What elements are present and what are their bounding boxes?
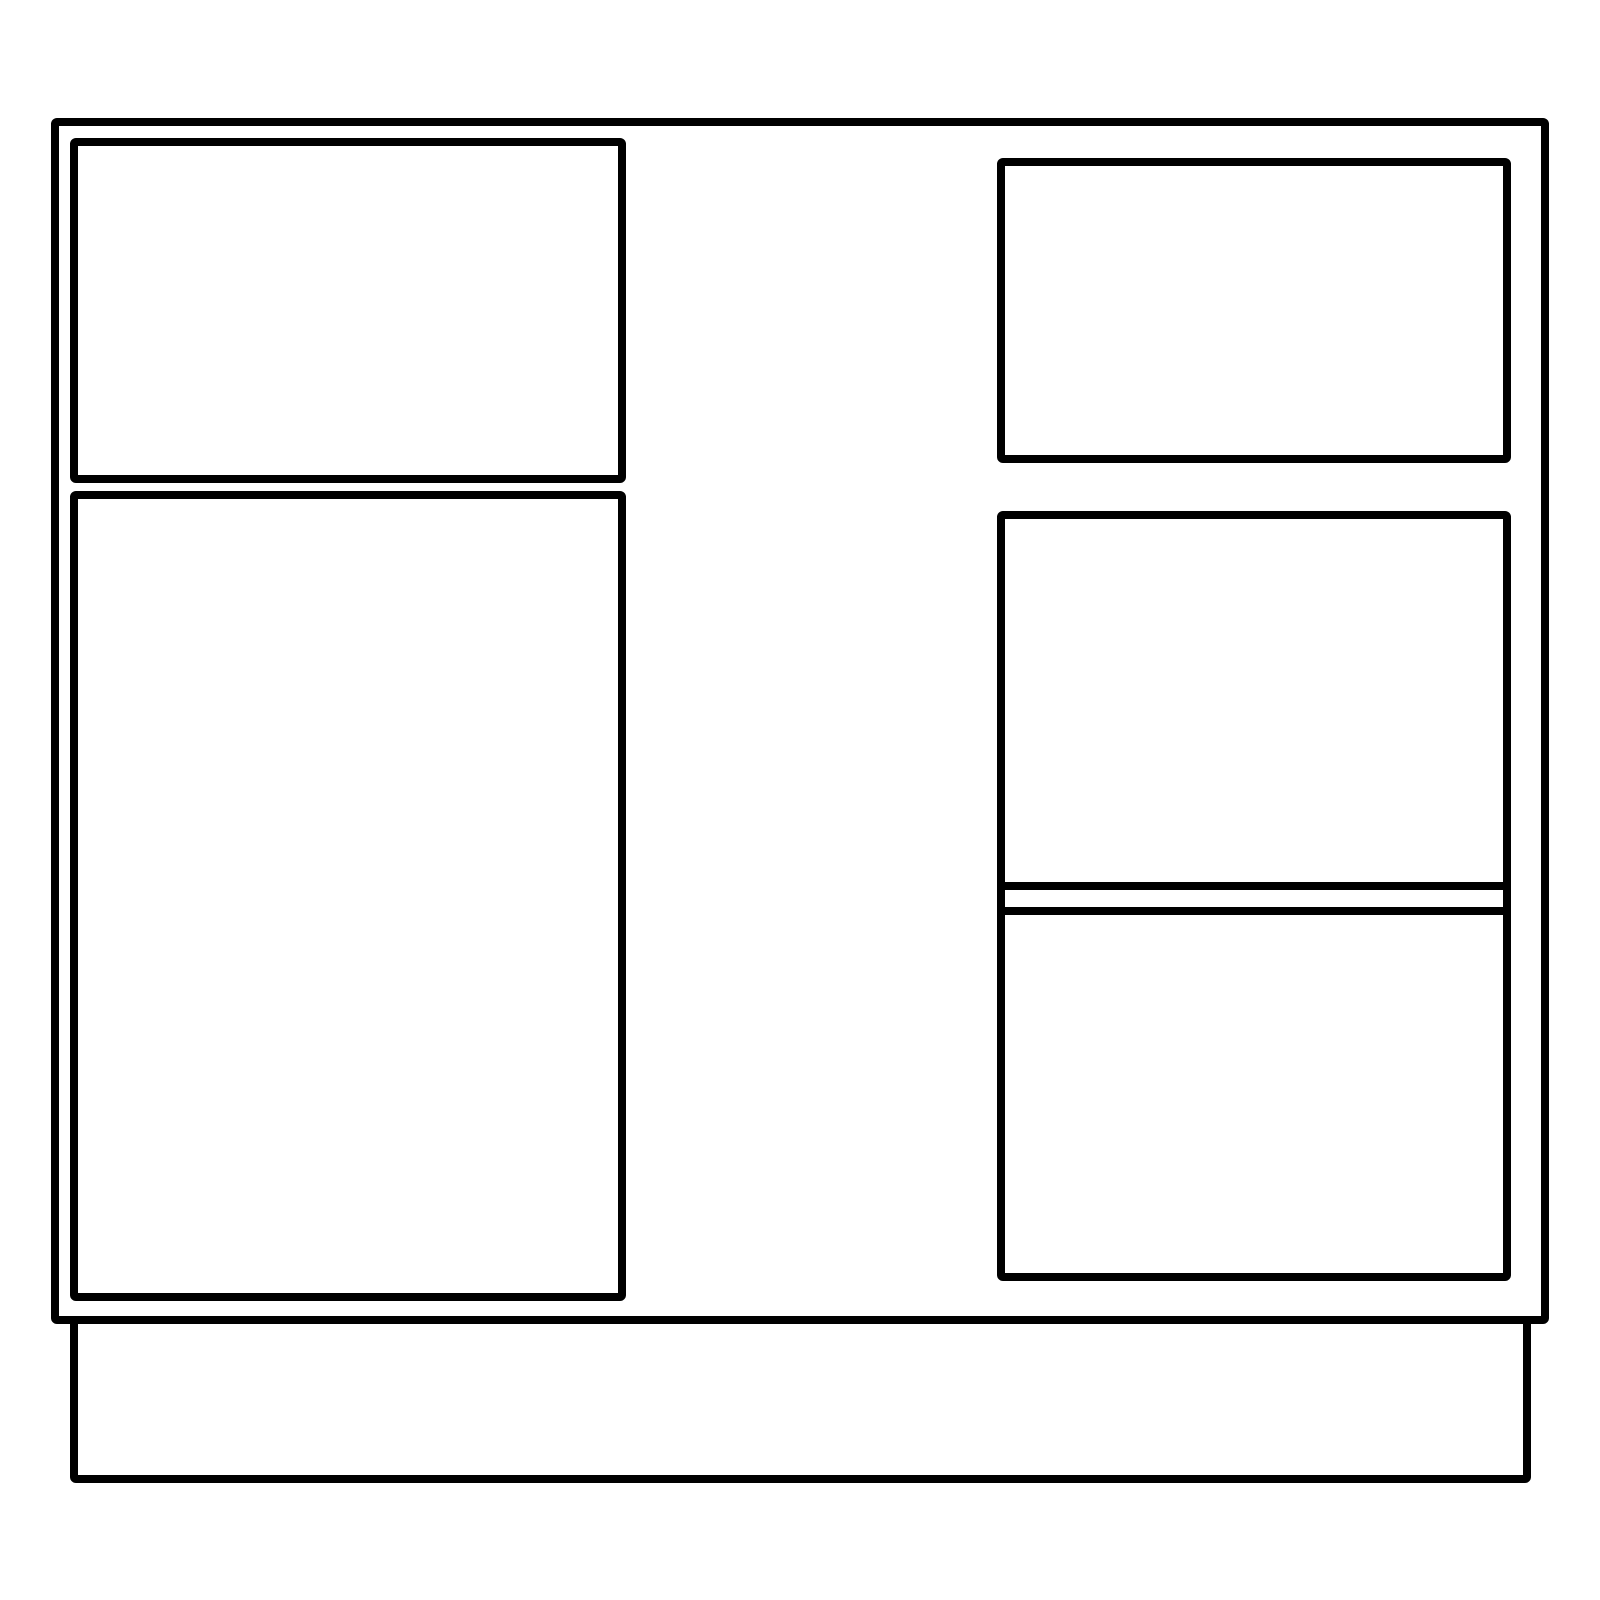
- cabinet-elevation-diagram: [0, 0, 1600, 1600]
- right-lower-panel: [997, 511, 1511, 1281]
- right-panel-divider-upper: [997, 882, 1511, 890]
- right-drawer-front: [997, 158, 1511, 463]
- right-panel-divider-lower: [997, 907, 1511, 915]
- toe-kick-base: [70, 1316, 1531, 1483]
- left-door-panel: [70, 491, 626, 1301]
- left-drawer-front: [70, 138, 626, 483]
